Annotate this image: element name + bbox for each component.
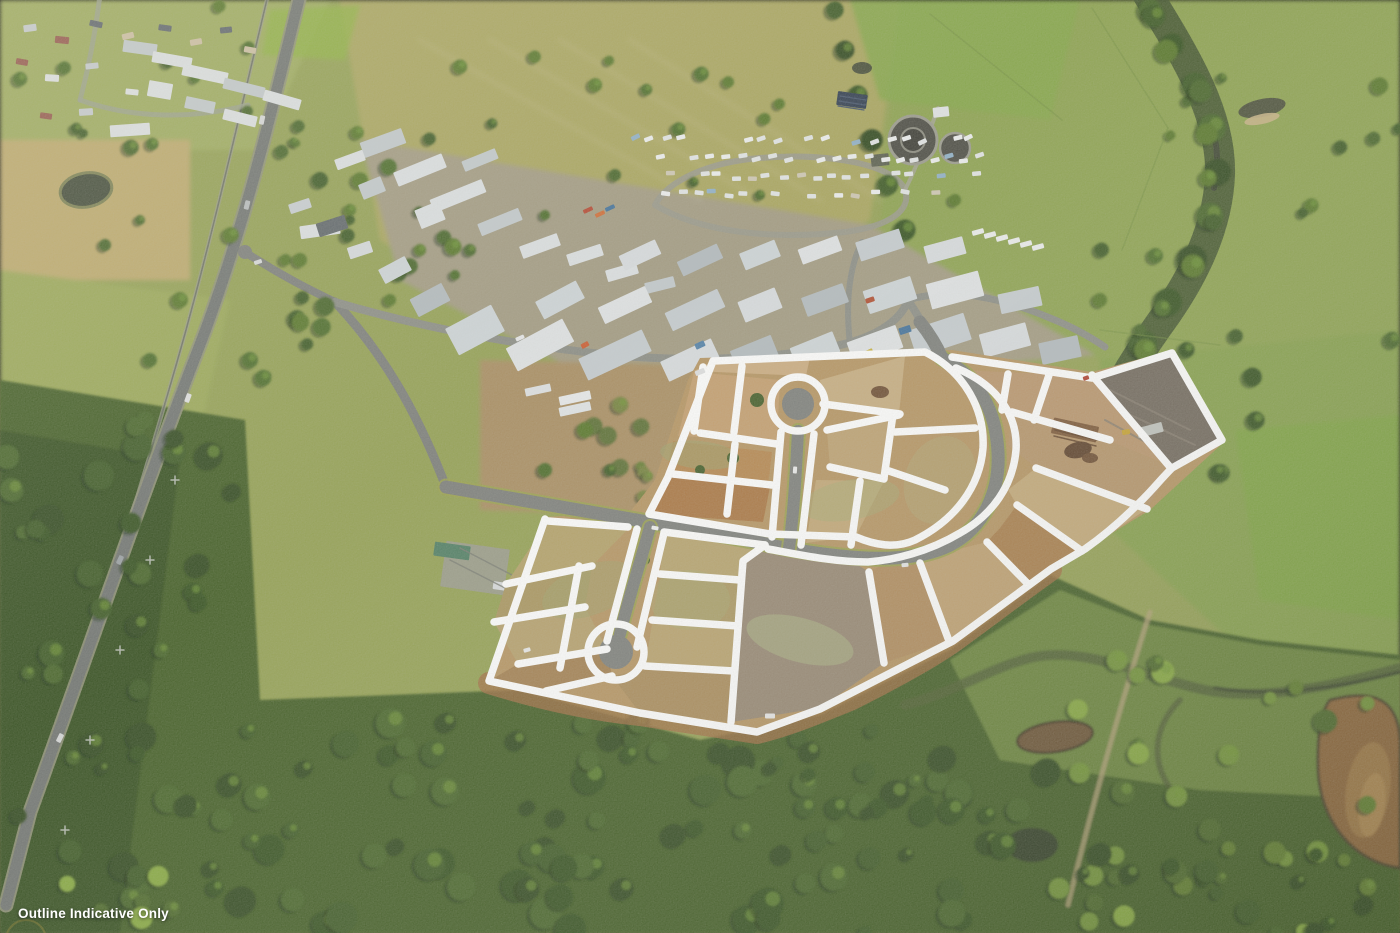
aerial-photo bbox=[0, 0, 1400, 933]
photo-grain bbox=[0, 0, 1400, 933]
caption-outline-indicative: Outline Indicative Only bbox=[18, 906, 169, 921]
aerial-photo-container: Outline Indicative Only bbox=[0, 0, 1400, 933]
